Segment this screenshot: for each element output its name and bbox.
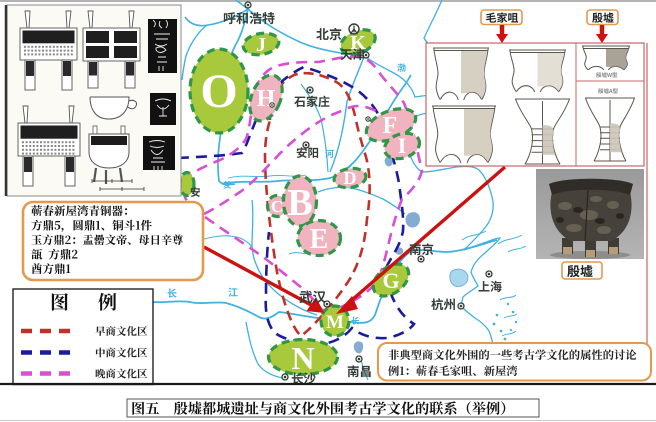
- svg-text:H: H: [257, 86, 276, 112]
- svg-text:N: N: [291, 340, 314, 376]
- svg-text:E: E: [310, 224, 329, 255]
- svg-text:I: I: [398, 133, 407, 158]
- svg-text:M: M: [326, 312, 344, 333]
- svg-text:B: B: [287, 182, 312, 224]
- svg-text:D: D: [344, 168, 357, 188]
- svg-text:C: C: [271, 197, 283, 216]
- svg-text:J: J: [256, 34, 266, 56]
- svg-text:O: O: [200, 65, 237, 118]
